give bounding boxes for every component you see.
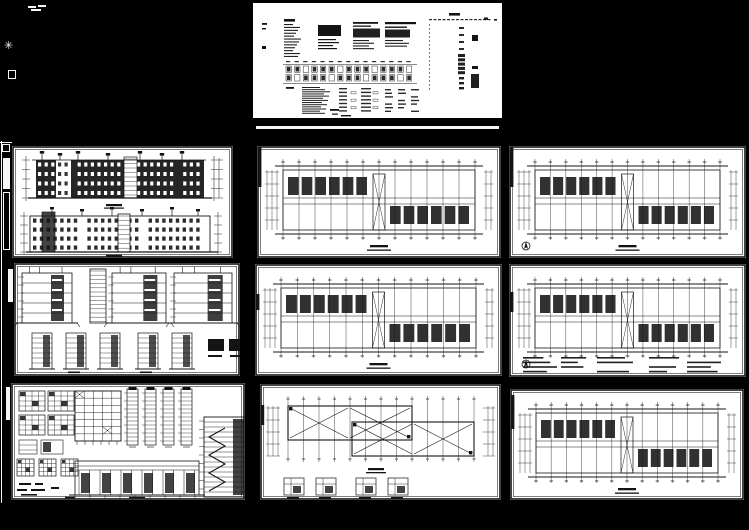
plan-drawing	[257, 146, 501, 258]
roofplan-drawing	[260, 384, 501, 500]
floor-plan-sheet-1[interactable]	[257, 146, 501, 258]
floor-plan-sheet-2[interactable]	[509, 146, 746, 258]
schedule-drawing	[253, 3, 502, 118]
elevations-drawing	[12, 146, 233, 258]
margin-bar	[6, 387, 10, 420]
cad-drawing-set-canvas: ✳	[0, 0, 749, 530]
plan-drawing	[509, 146, 746, 258]
margin-trim-line	[0, 142, 12, 143]
margin-square-mark	[8, 70, 16, 79]
margin-tick	[28, 6, 36, 8]
margin-tick	[31, 9, 41, 11]
margin-tick	[38, 5, 46, 7]
title-block-underline	[256, 126, 499, 129]
plan-drawing	[510, 389, 744, 500]
plan-drawing	[509, 264, 746, 377]
roof-plan-sheet[interactable]	[260, 384, 501, 500]
floor-plan-sheet-3[interactable]	[255, 264, 502, 376]
details-drawing	[11, 383, 245, 500]
floor-plan-sheet-5[interactable]	[510, 389, 744, 500]
margin-square-mark	[2, 144, 10, 152]
plan-drawing	[255, 264, 502, 376]
margin-trim-line	[1, 141, 2, 503]
sections-drawing	[14, 263, 240, 376]
building-sections-sheet[interactable]	[14, 263, 240, 376]
building-elevations-sheet[interactable]	[12, 146, 233, 258]
margin-bar	[8, 269, 13, 302]
margin-bar-outline	[3, 192, 10, 250]
title-block-and-drawing-index-sheet[interactable]	[253, 3, 502, 118]
construction-details-sheet[interactable]	[11, 383, 245, 500]
floor-plan-sheet-4[interactable]	[509, 264, 746, 377]
margin-bar	[3, 158, 10, 189]
margin-star-mark: ✳	[4, 40, 13, 51]
